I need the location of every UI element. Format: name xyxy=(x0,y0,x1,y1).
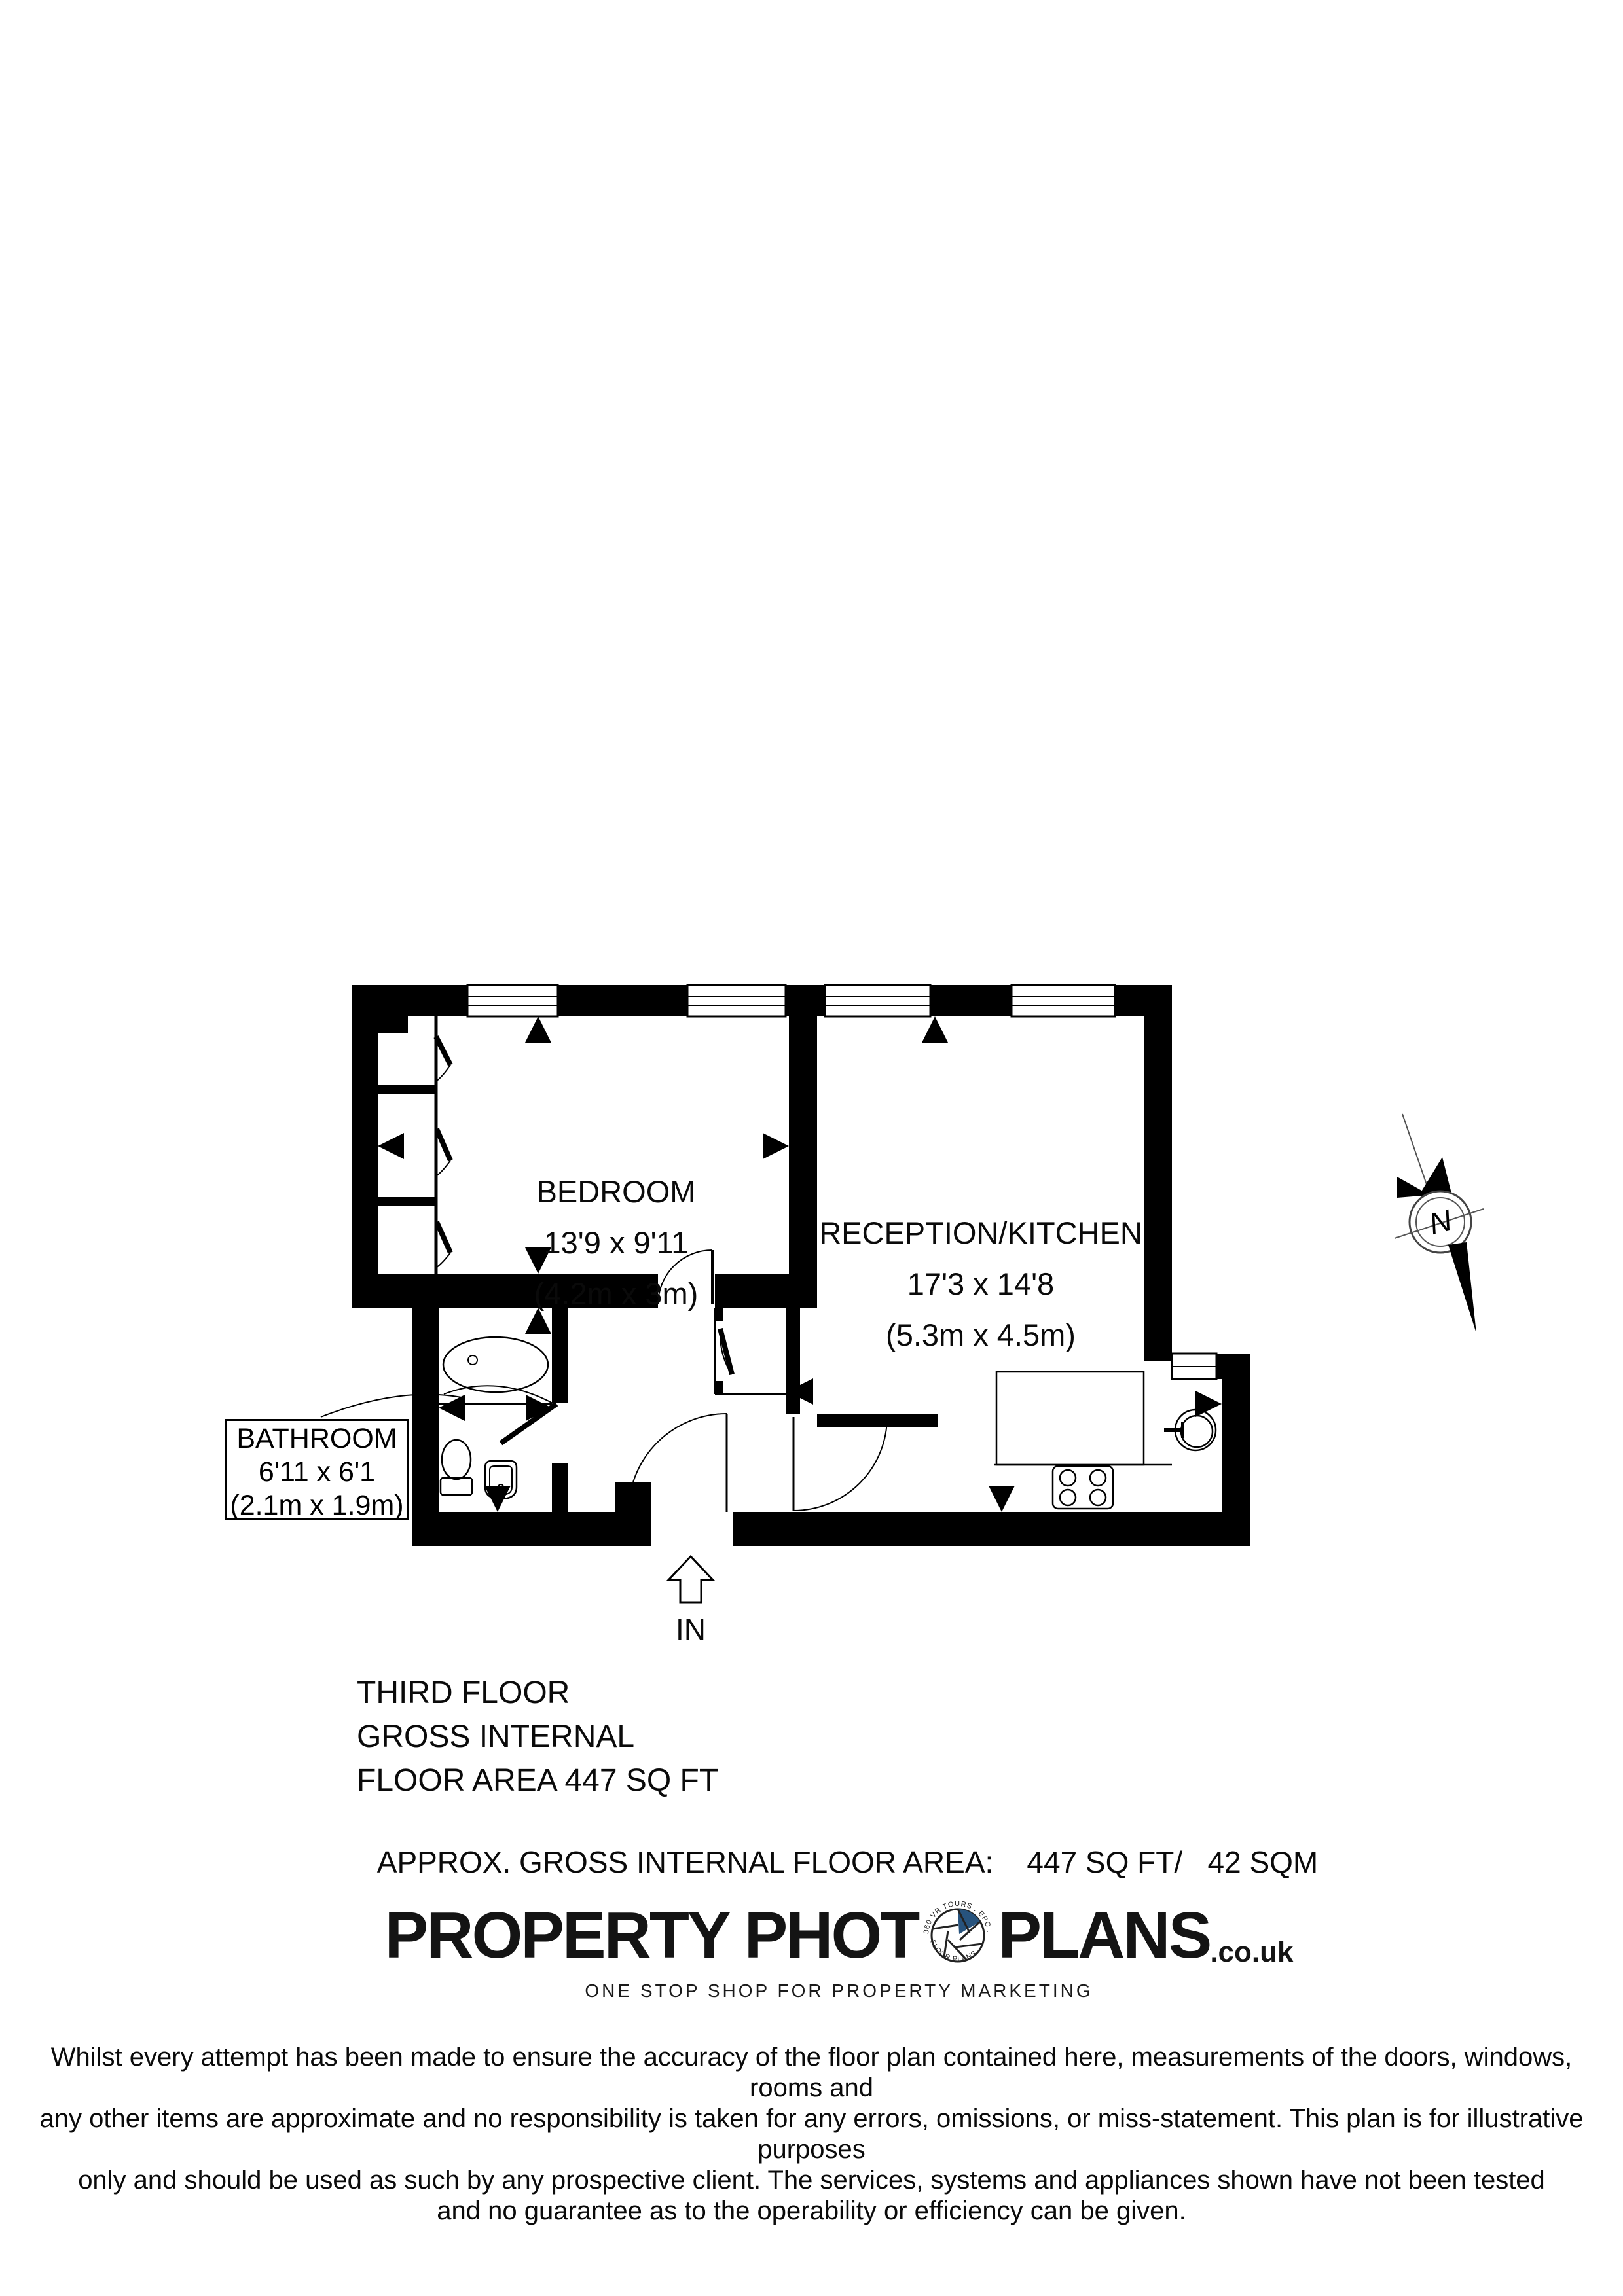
bedroom-name: BEDROOM xyxy=(485,1166,747,1217)
reception-label: RECEPTION/KITCHEN 17'3 x 14'8 (5.3m x 4.… xyxy=(817,1208,1144,1361)
hall-cupboard xyxy=(715,1308,786,1394)
compass: N xyxy=(1395,1114,1484,1333)
summary-line-2: GROSS INTERNAL xyxy=(357,1715,718,1759)
logo-tagline: ONE STOP SHOP FOR PROPERTY MARKETING xyxy=(585,1981,1093,2001)
floorplan-page: IN N BEDROOM 13'9 x 9'11 (4.2m x 3m) REC… xyxy=(0,0,1623,2296)
summary-line-1: THIRD FLOOR xyxy=(357,1671,718,1715)
reception-window-2 xyxy=(1012,985,1115,1016)
bedroom-window-2 xyxy=(687,985,786,1016)
hob xyxy=(1053,1466,1113,1509)
bathroom-dims-imperial: 6'11 x 6'1 xyxy=(227,1456,407,1489)
bathtub xyxy=(439,1337,552,1404)
bedroom-dims-metric: (4.2m x 3m) xyxy=(485,1268,747,1319)
kitchen-nook-window xyxy=(1172,1354,1216,1379)
kitchen-sink xyxy=(1164,1410,1216,1450)
floor-summary: THIRD FLOOR GROSS INTERNAL FLOOR AREA 44… xyxy=(357,1671,718,1803)
bathroom-dims-metric: (2.1m x 1.9m) xyxy=(227,1489,407,1522)
floorplan-drawing: IN N xyxy=(0,982,1623,1676)
bedroom-label: BEDROOM 13'9 x 9'11 (4.2m x 3m) xyxy=(485,1166,747,1319)
summary-line-3: FLOOR AREA 447 SQ FT xyxy=(357,1759,718,1803)
kitchen-counter xyxy=(994,1372,1172,1465)
logo: PROPERTY PHOT 360 VR TOURS . EPC xyxy=(27,1897,1623,2001)
toilet xyxy=(441,1440,472,1495)
bedroom-window-1 xyxy=(467,985,558,1016)
entrance-arrow: IN xyxy=(668,1556,713,1646)
logo-text-left: PROPERTY PHOT xyxy=(385,1899,919,1971)
logo-text-right: PLANS xyxy=(998,1899,1210,1971)
disclaimer-line-2: any other items are approximate and no r… xyxy=(26,2104,1597,2165)
disclaimer-line-4: and no guarantee as to the operability o… xyxy=(26,2196,1597,2227)
svg-text:360 VR TOURS . EPC . PHOTOGRAP: 360 VR TOURS . EPC . PHOTOGRAPHY . xyxy=(919,1897,993,1936)
svg-text:FLOOR PLANS .: FLOOR PLANS . xyxy=(928,1939,982,1963)
entrance-label: IN xyxy=(676,1612,706,1646)
leader-line xyxy=(321,1394,462,1417)
bathroom-label-box: BATHROOM 6'11 x 6'1 (2.1m x 1.9m) xyxy=(225,1419,409,1520)
camera-aperture-icon: 360 VR TOURS . EPC . PHOTOGRAPHY . FLOOR… xyxy=(919,1897,996,1974)
disclaimer-line-1: Whilst every attempt has been made to en… xyxy=(26,2042,1597,2104)
disclaimer: Whilst every attempt has been made to en… xyxy=(26,2042,1597,2227)
reception-name: RECEPTION/KITCHEN xyxy=(817,1208,1144,1259)
reception-dims-metric: (5.3m x 4.5m) xyxy=(817,1310,1144,1361)
reception-dims-imperial: 17'3 x 14'8 xyxy=(817,1259,1144,1310)
disclaimer-line-3: only and should be used as such by any p… xyxy=(26,2165,1597,2196)
logo-ring-bottom-text: FLOOR PLANS . xyxy=(928,1939,982,1963)
bedroom-dims-imperial: 13'9 x 9'11 xyxy=(485,1217,747,1268)
gross-area-line: APPROX. GROSS INTERNAL FLOOR AREA: 447 S… xyxy=(36,1844,1623,1880)
bathroom-name: BATHROOM xyxy=(227,1422,407,1456)
logo-domain-suffix: .co.uk xyxy=(1210,1936,1293,1974)
reception-door xyxy=(793,1417,887,1511)
logo-ring-top-text: 360 VR TOURS . EPC . PHOTOGRAPHY . xyxy=(919,1897,993,1936)
bedroom-wardrobe xyxy=(436,1016,450,1274)
reception-window-1 xyxy=(825,985,930,1016)
